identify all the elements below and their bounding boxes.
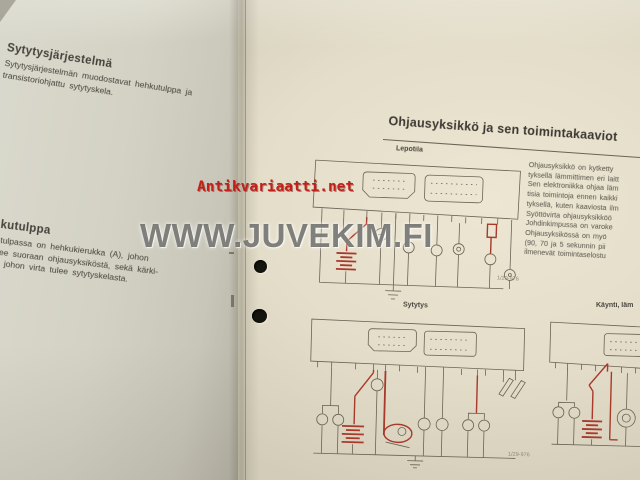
diagram-label-kaynti: Käynti, läm [596,302,633,309]
page-edge-mark [231,295,234,307]
wiring-diagram-run-heat [543,312,640,466]
seller-watermark: Antikvariaatti.net [197,179,354,195]
figure-number: 1/29-976 [508,452,530,459]
book-photo: Sytytysjärjestelmä Sytytysjärjestelmän m… [0,0,640,480]
punch-hole [252,309,267,323]
diagram-label-lepotila: Lepotila [396,145,423,153]
site-watermark: WWW.JUVEKIM.FI [140,217,480,255]
body-column: Ohjausyksikkö on kytketty tyksellä lämmi… [524,160,640,263]
diagram-label-sytytys: Sytytys [403,302,428,310]
figure-number: 1/29-976 [497,275,519,282]
wiring-diagram-ignition [305,313,531,477]
page-edge-mark [229,252,234,254]
punch-hole [254,260,267,273]
